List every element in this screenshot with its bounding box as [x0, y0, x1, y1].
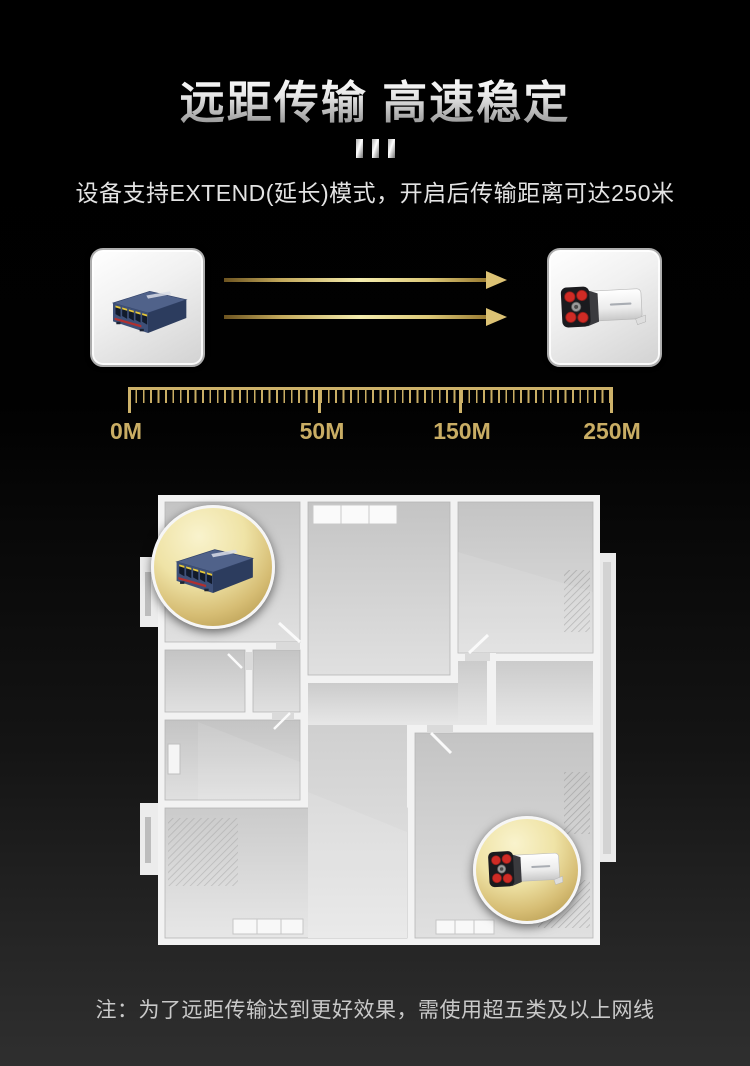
footnote: 注：为了远距传输达到更好效果，需使用超五类及以上网线 [0, 994, 750, 1024]
camera-location-callout [473, 816, 581, 924]
arrow-head-icon [486, 271, 507, 289]
switch-product-card [90, 248, 205, 367]
bullet-camera-icon [555, 272, 655, 344]
transmission-arrow-icon [224, 315, 486, 319]
ruler-ticks [128, 390, 613, 403]
ruler-major-tick [459, 390, 462, 413]
page-title: 远距传输 高速稳定 [0, 66, 750, 131]
title-divider-bars [0, 139, 750, 158]
divider-bar-icon [388, 139, 395, 158]
transmission-arrow-icon [224, 278, 486, 282]
ruler-major-tick [610, 390, 613, 413]
distance-ruler: 0M 50M 150M 250M [128, 387, 613, 447]
ruler-major-tick [318, 390, 321, 413]
camera-product-card [547, 248, 662, 367]
ruler-label-250m: 250M [583, 418, 641, 445]
ruler-label-50m: 50M [300, 418, 345, 445]
switch-location-callout [151, 505, 275, 629]
subtitle: 设备支持EXTEND(延长)模式，开启后传输距离可达250米 [0, 174, 750, 208]
ruler-label-150m: 150M [433, 418, 491, 445]
bullet-camera-icon [483, 842, 571, 898]
arrow-head-icon [486, 308, 507, 326]
divider-bar-icon [356, 139, 363, 158]
poe-switch-icon [98, 272, 198, 344]
divider-bar-icon [372, 139, 379, 158]
poe-switch-icon [161, 531, 265, 603]
ruler-label-0m: 0M [110, 418, 142, 445]
ruler-major-tick [128, 390, 131, 413]
product-poster: 远距传输 高速稳定 设备支持EXTEND(延长)模式，开启后传输距离可达250米 [0, 0, 750, 1066]
